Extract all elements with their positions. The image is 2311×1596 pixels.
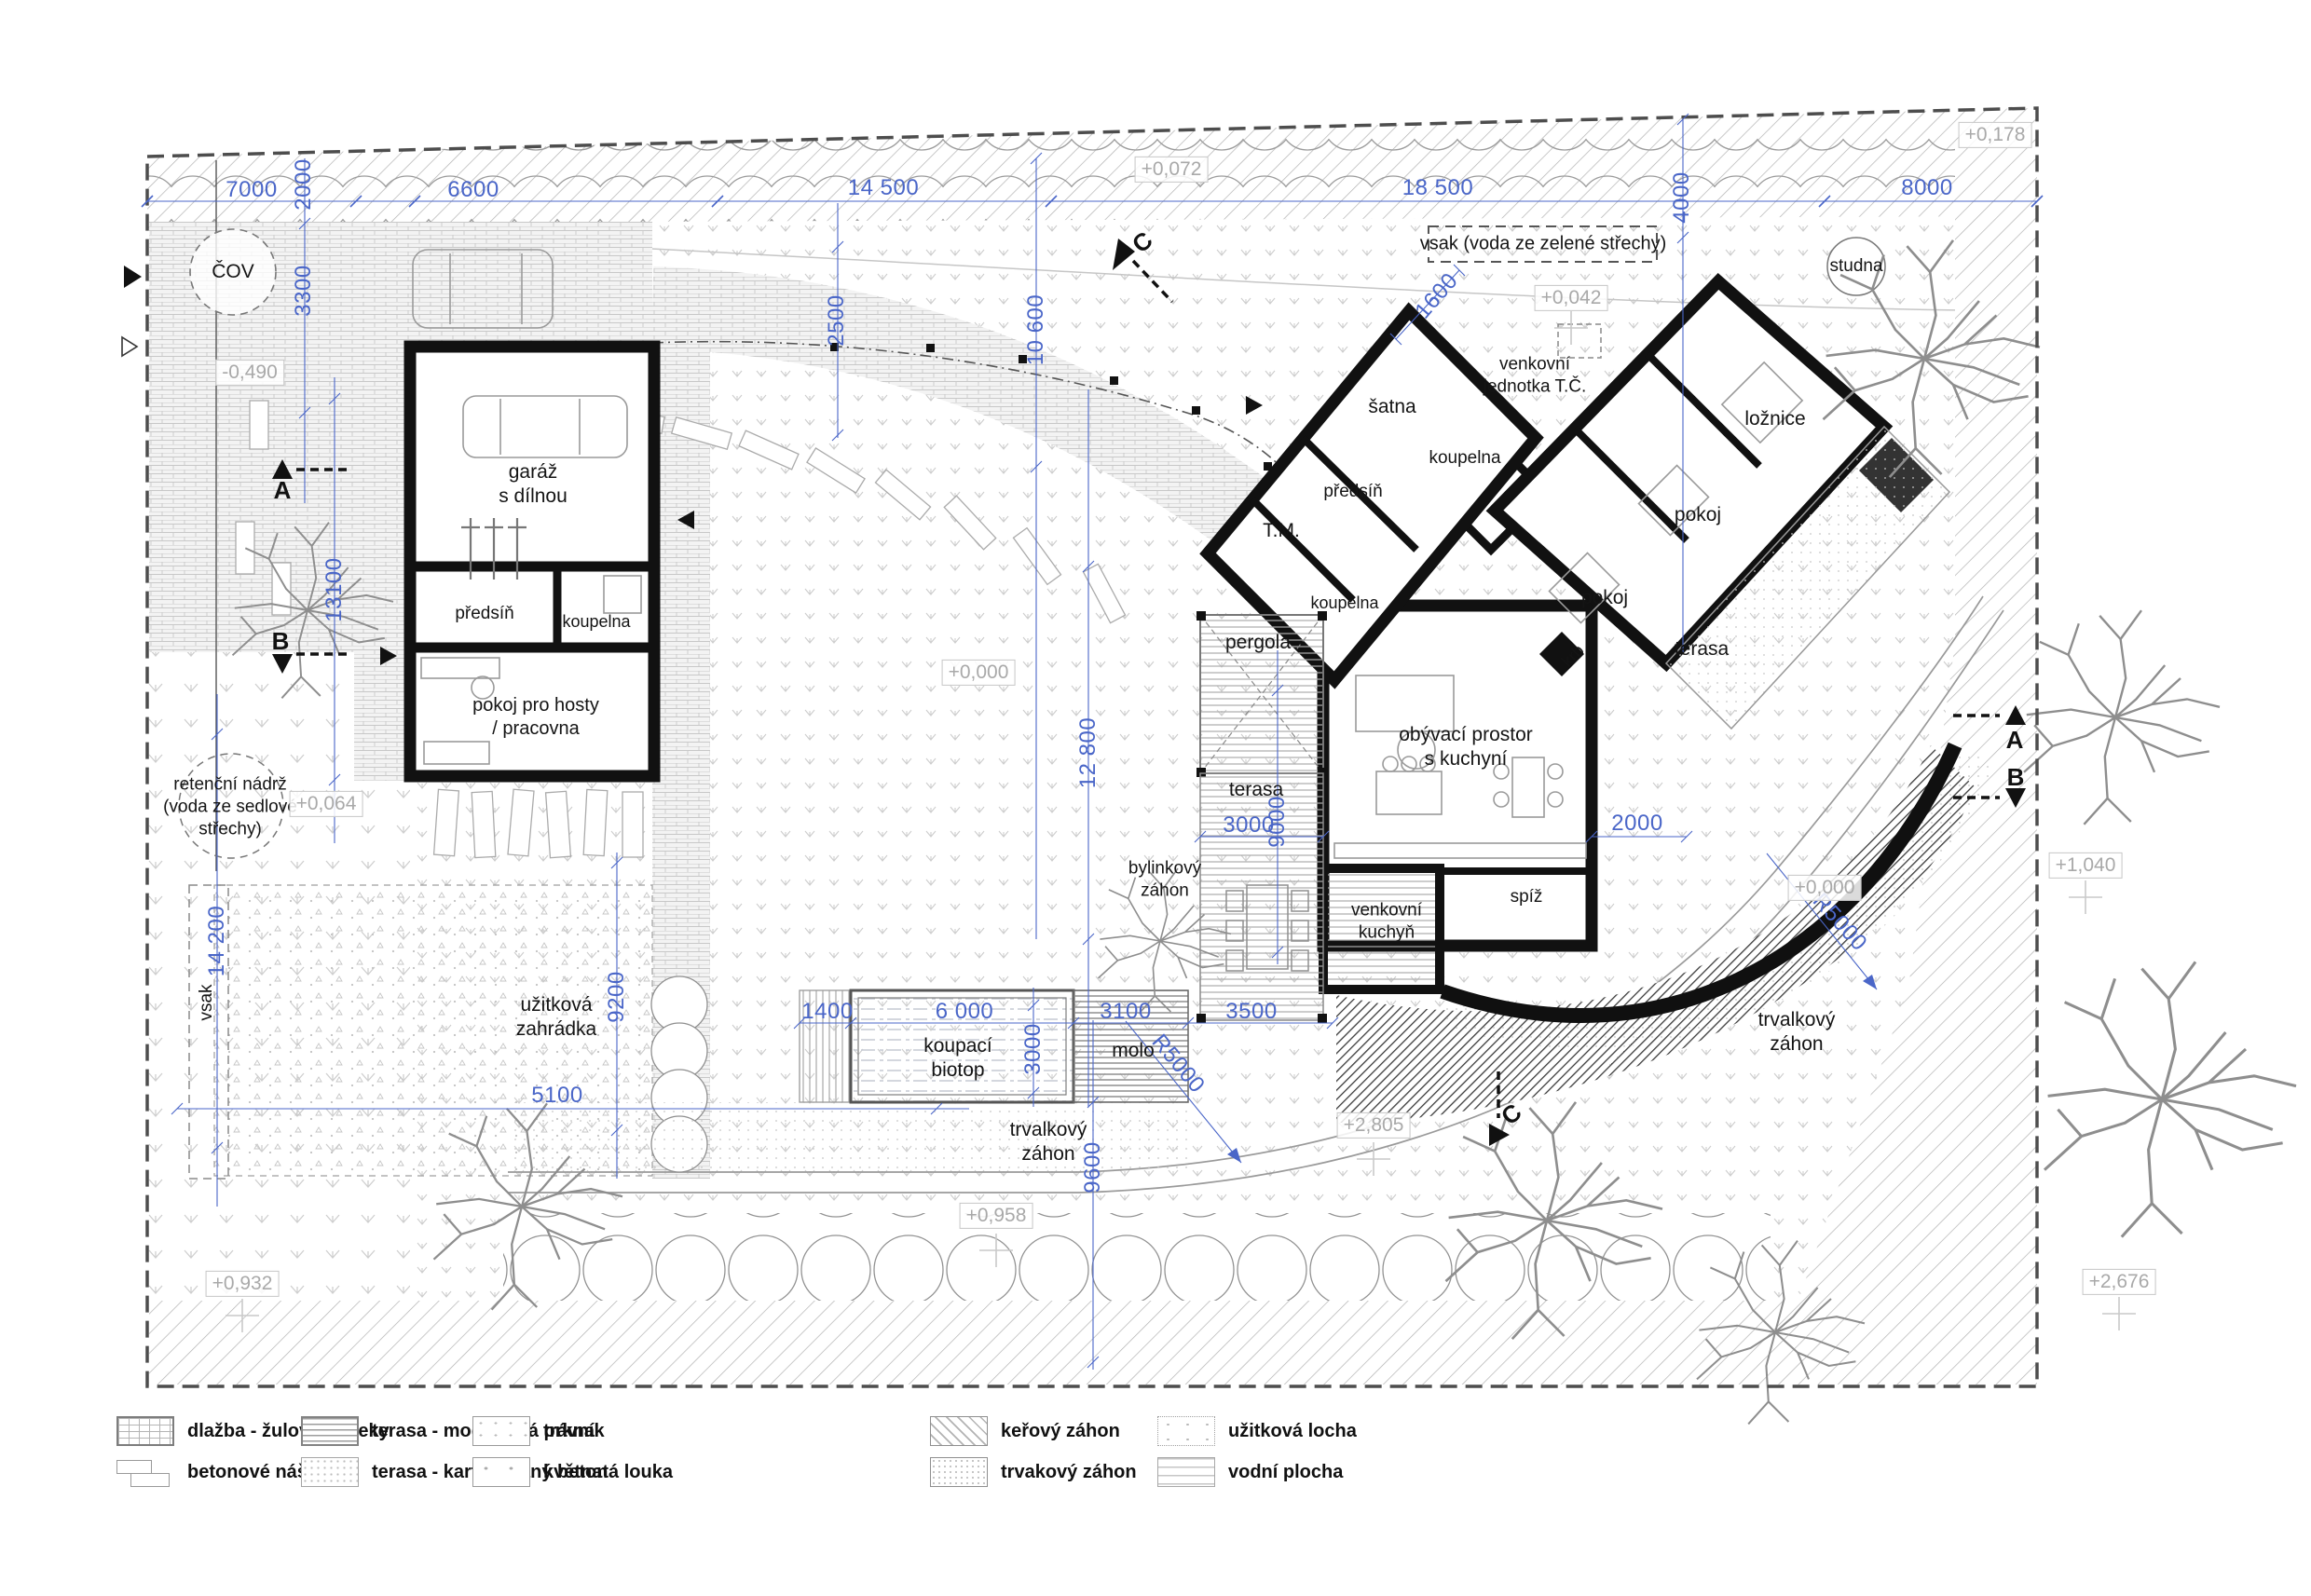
pergola-terrace xyxy=(1197,611,1327,1023)
planks-swatch-icon xyxy=(301,1416,359,1446)
perennials-swatch-icon xyxy=(930,1457,988,1487)
pavers-swatch-icon xyxy=(116,1416,174,1446)
legend-label: užitková locha xyxy=(1228,1421,1357,1442)
water-swatch-icon xyxy=(1157,1457,1215,1487)
legend-item-lawn: trávník xyxy=(472,1416,605,1446)
lawn-swatch-icon xyxy=(472,1416,530,1446)
legend-item-utility: užitková locha xyxy=(1157,1416,1357,1446)
legend-label: trvakový záhon xyxy=(1001,1462,1137,1483)
steps-swatch-icon xyxy=(116,1457,174,1487)
plan-linework xyxy=(0,0,2311,1596)
legend-item-perennials: trvakový záhon xyxy=(930,1457,1137,1487)
legend-label: trávník xyxy=(543,1421,605,1442)
meadow-swatch-icon xyxy=(472,1457,530,1487)
shrubs-swatch-icon xyxy=(930,1416,988,1446)
legend-item-shrubs: keřový záhon xyxy=(930,1416,1120,1446)
entrance-arrow-icon xyxy=(124,266,142,288)
legend-item-water: vodní plocha xyxy=(1157,1457,1343,1487)
legend-label: keřový záhon xyxy=(1001,1421,1120,1442)
site-plan: ČOVgaráž s dílnoupředsíňkoupelnapokoj pr… xyxy=(0,0,2311,1596)
legend-label: vodní plocha xyxy=(1228,1462,1343,1483)
utility-swatch-icon xyxy=(1157,1416,1215,1446)
concrete-swatch-icon xyxy=(301,1457,359,1487)
legend-item-meadow: květnatá louka xyxy=(472,1457,673,1487)
legend-label: květnatá louka xyxy=(543,1462,673,1483)
